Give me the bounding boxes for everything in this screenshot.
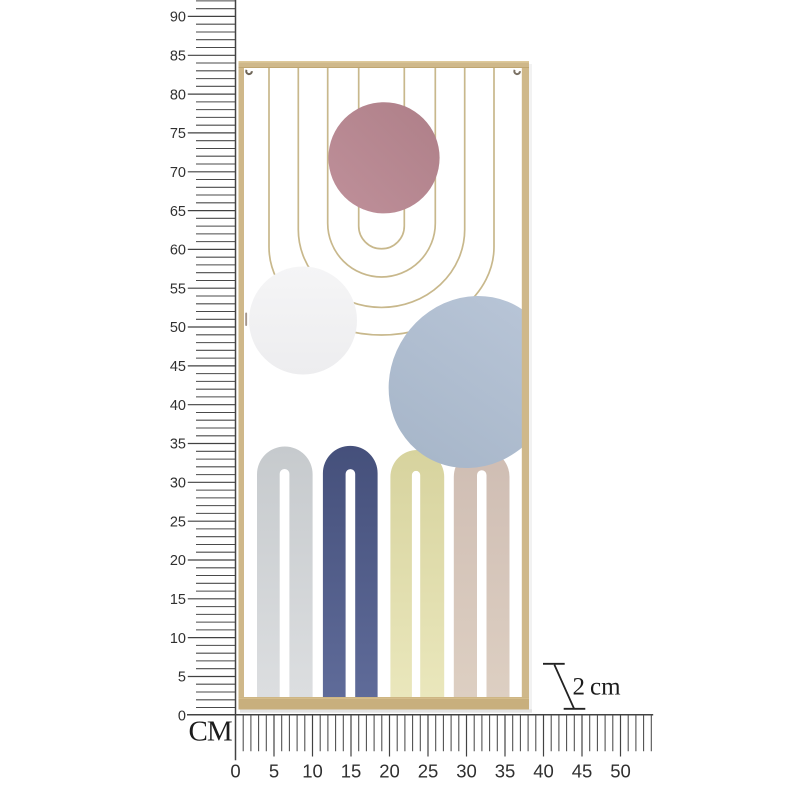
svg-text:35: 35	[170, 437, 186, 453]
svg-text:25: 25	[418, 761, 439, 782]
svg-text:30: 30	[170, 476, 186, 492]
svg-text:85: 85	[170, 49, 186, 65]
svg-text:20: 20	[170, 553, 186, 569]
svg-text:50: 50	[170, 320, 186, 336]
svg-text:80: 80	[170, 87, 186, 103]
svg-text:40: 40	[533, 761, 554, 782]
svg-text:0: 0	[178, 709, 186, 725]
svg-text:70: 70	[170, 165, 186, 181]
svg-text:5: 5	[269, 761, 279, 782]
svg-text:50: 50	[610, 761, 631, 782]
svg-text:10: 10	[302, 761, 323, 782]
svg-text:15: 15	[341, 761, 362, 782]
svg-text:30: 30	[456, 761, 477, 782]
svg-text:15: 15	[170, 592, 186, 608]
svg-text:35: 35	[495, 761, 516, 782]
svg-text:5: 5	[178, 670, 186, 686]
svg-text:65: 65	[170, 204, 186, 220]
svg-text:60: 60	[170, 243, 186, 259]
svg-text:CM: CM	[189, 716, 232, 748]
svg-text:40: 40	[170, 398, 186, 414]
svg-text:0: 0	[230, 761, 240, 782]
svg-text:20: 20	[379, 761, 400, 782]
svg-text:2 cm: 2 cm	[573, 674, 622, 701]
svg-text:45: 45	[170, 359, 186, 375]
svg-text:25: 25	[170, 514, 186, 530]
svg-text:75: 75	[170, 126, 186, 142]
svg-text:55: 55	[170, 281, 186, 297]
svg-text:90: 90	[170, 10, 186, 26]
svg-text:45: 45	[572, 761, 593, 782]
svg-text:10: 10	[170, 631, 186, 647]
